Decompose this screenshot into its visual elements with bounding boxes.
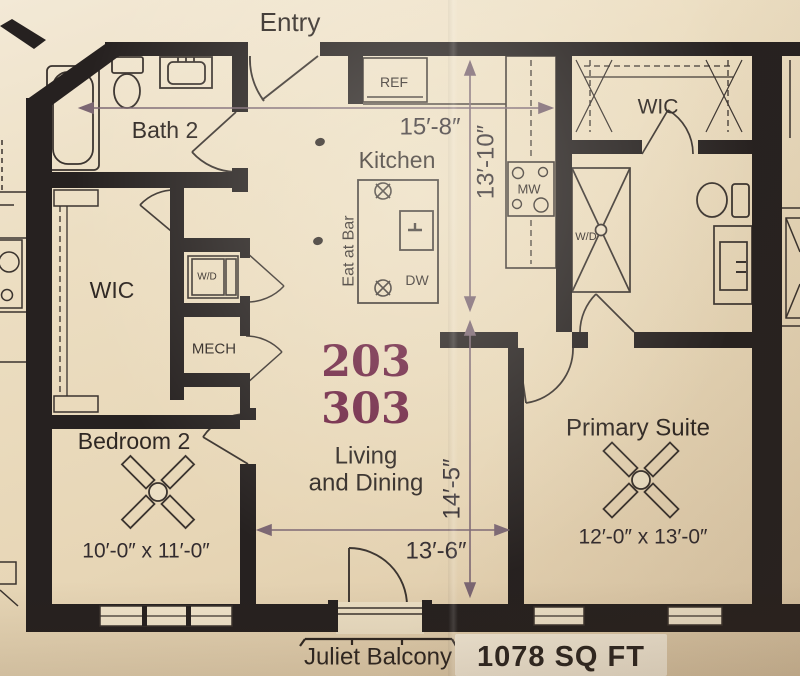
wall-bath2-bottom <box>52 172 232 188</box>
floor-plan-photo: Entry Bath 2 REF 15′-8″ 13′-10″ Kitchen … <box>0 0 800 676</box>
living-label-line1: Living <box>335 443 398 470</box>
juliet-balcony-label: Juliet Balcony <box>304 644 452 671</box>
ceiling-fan-primary <box>604 443 679 518</box>
entry-label: Entry <box>260 7 321 37</box>
wall-left <box>26 98 52 632</box>
primary-suite-door <box>518 348 573 403</box>
wall-right <box>752 56 782 632</box>
toilet-fixture-bath2 <box>112 57 143 108</box>
wall-top-right <box>320 42 800 56</box>
ceiling-fan-bedroom2 <box>122 456 194 528</box>
neighbor-wall-fragment <box>0 19 46 49</box>
floor-plan-drawing: Entry Bath 2 REF 15′-8″ 13′-10″ Kitchen … <box>0 0 800 676</box>
light-symbols <box>375 183 391 296</box>
mw-label: MW <box>517 182 541 197</box>
vanity-fixture-primary <box>714 226 752 304</box>
wall-living-primary <box>508 348 524 604</box>
unit-number-303: 303 <box>321 384 411 434</box>
outlet-symbols <box>312 137 326 247</box>
balcony-door-opening <box>336 602 424 634</box>
wall-kitchen-right <box>556 56 572 332</box>
wall-top-left <box>105 42 248 56</box>
dim-kitchen-width: 15′-8″ <box>399 114 461 141</box>
wall-bedroom2-right <box>240 464 256 604</box>
neighbor-shower-fixture <box>786 218 800 318</box>
wall-bedroom2-top <box>52 415 240 429</box>
neighbor-unit-right <box>782 60 800 326</box>
toilet-fixture-primary <box>697 183 749 217</box>
dw-label: DW <box>405 272 429 288</box>
kitchen-label: Kitchen <box>359 147 436 173</box>
area-label: 1078 SQ FT <box>477 641 645 673</box>
entry-door <box>250 56 318 101</box>
ref-label: REF <box>380 74 408 90</box>
bath2-door <box>192 112 236 172</box>
dim-living-width: 13′-6″ <box>405 538 467 565</box>
primary-bath-door <box>580 294 634 332</box>
kitchen-counter-right <box>506 56 556 268</box>
neighbor-unit-left <box>0 140 26 606</box>
eat-at-bar-label: Eat at Bar <box>341 215 358 287</box>
dim-primary: 12′-0″ x 13′-0″ <box>579 526 709 549</box>
wic-right-label: WIC <box>638 96 679 119</box>
sink-fixture-bath2 <box>160 57 212 88</box>
living-label-line2: and Dining <box>309 470 424 497</box>
dim-bedroom2: 10′-0″ x 11′-0″ <box>82 540 210 563</box>
dim-living-depth: 14′-5″ <box>439 458 466 520</box>
wd-right-label: W/D <box>575 231 596 243</box>
wd-left-label: W/D <box>197 272 216 283</box>
wd-mech-doors <box>246 252 284 384</box>
bath2-label: Bath 2 <box>132 117 199 143</box>
balcony-door <box>349 548 407 606</box>
dim-kitchen-depth: 13′-10″ <box>473 124 500 199</box>
wic-left-label: WIC <box>90 277 135 303</box>
mech-label: MECH <box>192 341 236 358</box>
shower-wd-xbox-fixture <box>572 168 630 292</box>
bedroom2-label: Bedroom 2 <box>78 428 191 454</box>
unit-number-203: 203 <box>321 337 411 387</box>
primary-suite-label: Primary Suite <box>566 415 710 442</box>
